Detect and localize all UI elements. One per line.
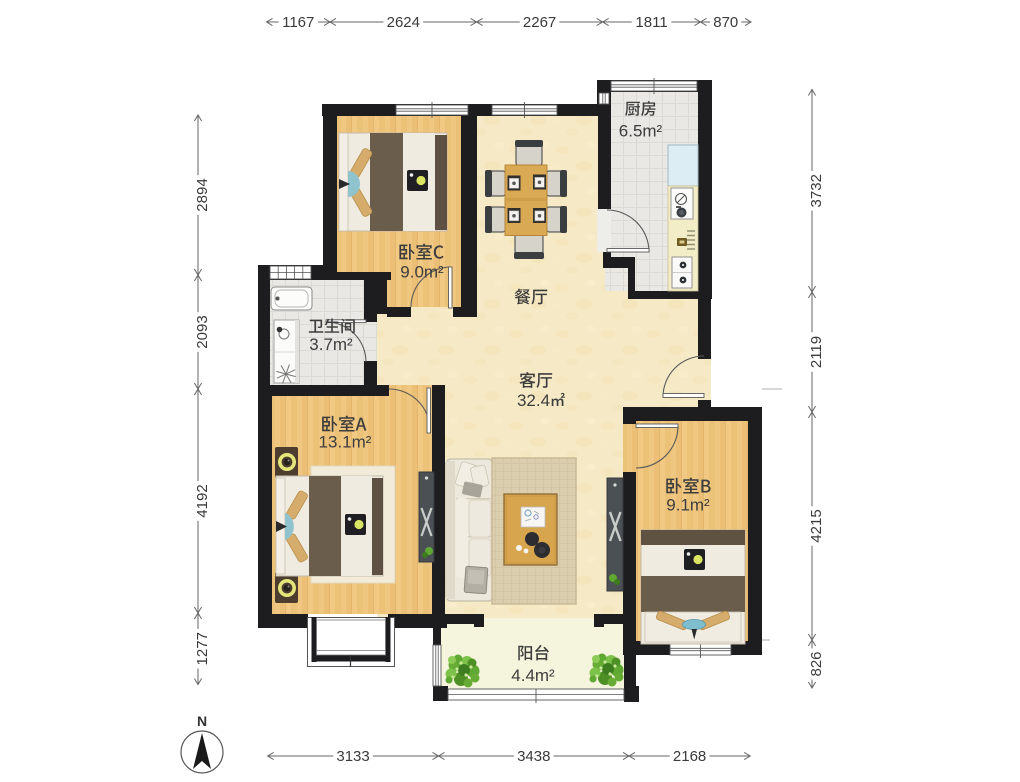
svg-text:2119: 2119 [808, 336, 825, 368]
svg-text:9.0m²: 9.0m² [400, 263, 444, 282]
svg-text:6.5m²: 6.5m² [619, 122, 663, 141]
svg-text:32.4: 32.4 [517, 391, 550, 410]
svg-text:3.7m²: 3.7m² [309, 335, 353, 354]
svg-text:4192: 4192 [194, 484, 211, 517]
svg-text:N: N [197, 713, 207, 729]
svg-text:9.1m²: 9.1m² [666, 496, 710, 515]
svg-text:826: 826 [808, 651, 825, 676]
svg-text:4.4m²: 4.4m² [511, 666, 555, 685]
svg-text:3438: 3438 [517, 748, 550, 765]
svg-text:3732: 3732 [808, 174, 825, 207]
svg-text:1811: 1811 [635, 14, 667, 31]
svg-text:3133: 3133 [336, 748, 369, 765]
svg-text:13.1m²: 13.1m² [319, 433, 372, 452]
svg-text:1167: 1167 [282, 14, 314, 31]
svg-text:2168: 2168 [673, 748, 706, 765]
svg-text:2894: 2894 [194, 178, 211, 211]
svg-text:4215: 4215 [808, 509, 825, 542]
svg-text:2624: 2624 [387, 14, 420, 31]
svg-text:870: 870 [713, 14, 738, 31]
svg-text:1277: 1277 [194, 632, 211, 665]
svg-text:2267: 2267 [523, 14, 556, 31]
svg-text:2093: 2093 [194, 315, 211, 348]
